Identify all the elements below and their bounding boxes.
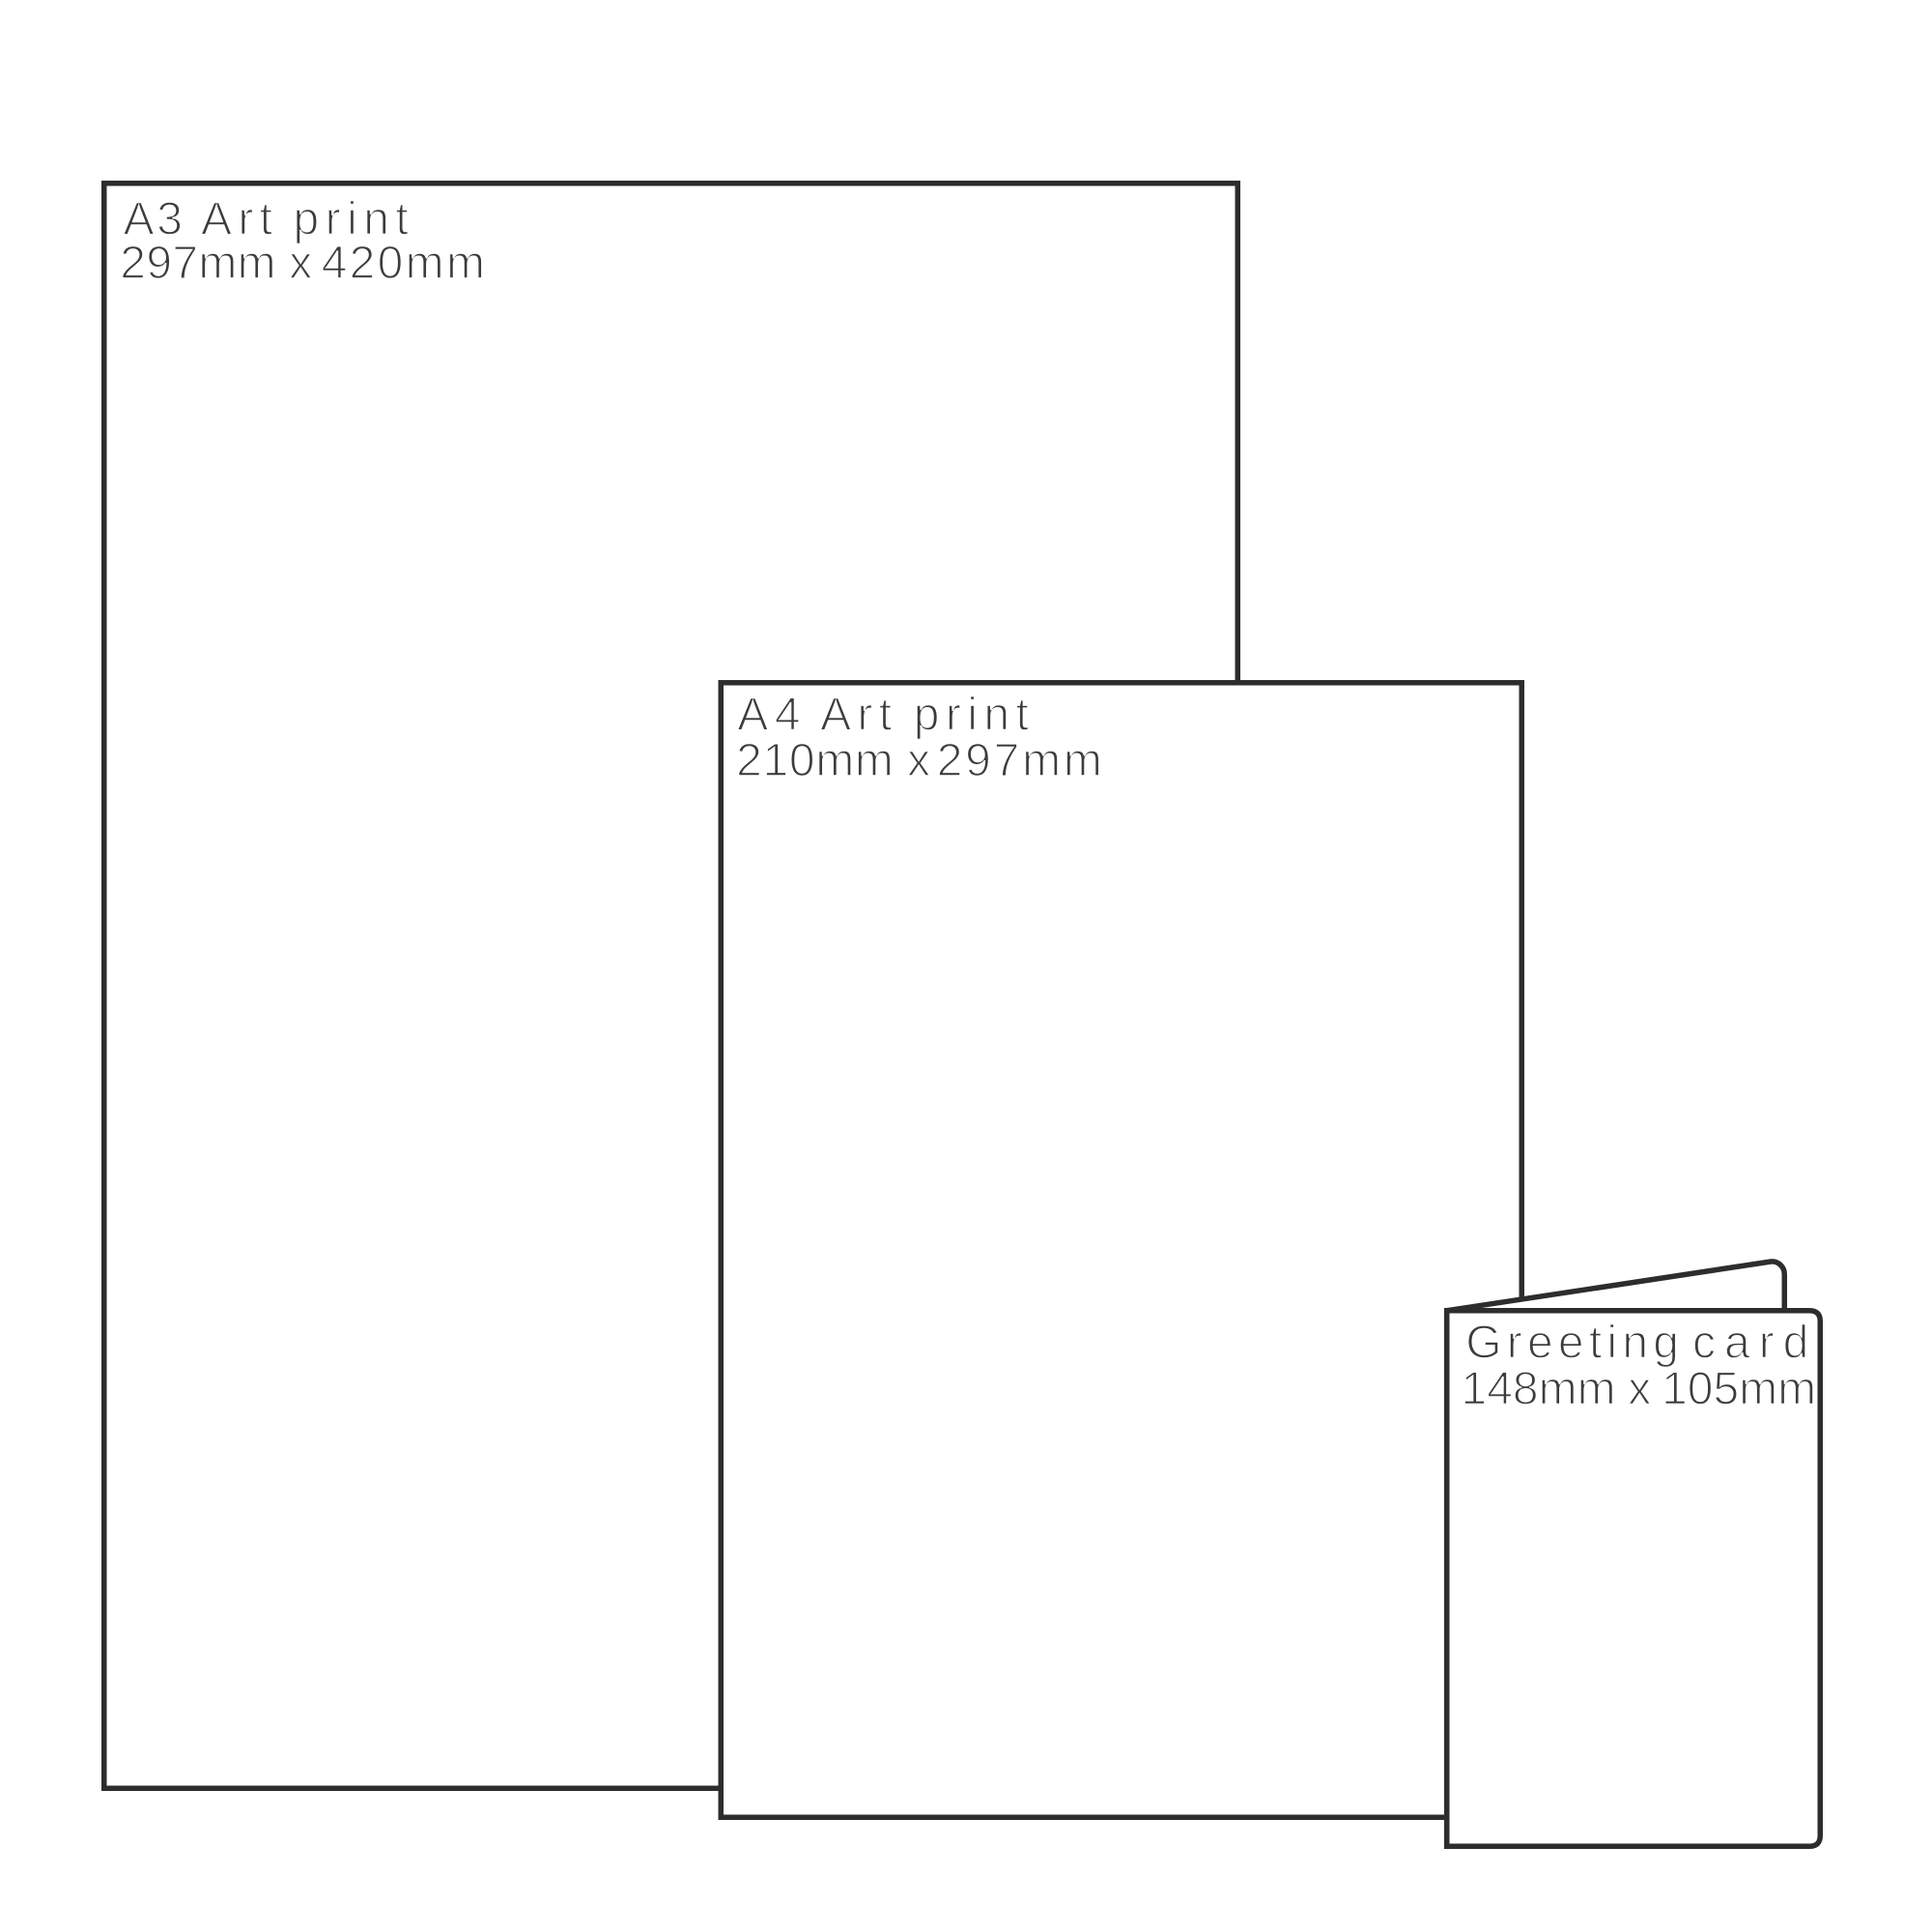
svg-text:148mm: 148mm <box>1462 1364 1616 1415</box>
svg-text:print: print <box>914 690 1036 741</box>
svg-text:x: x <box>289 238 312 289</box>
svg-text:Art: Art <box>820 690 897 741</box>
svg-text:Greeting: Greeting <box>1465 1318 1684 1369</box>
svg-text:card: card <box>1692 1318 1817 1369</box>
svg-text:297mm: 297mm <box>120 238 276 289</box>
svg-text:105mm: 105mm <box>1662 1364 1816 1415</box>
svg-text:x: x <box>907 735 930 786</box>
svg-text:297mm: 297mm <box>937 735 1105 786</box>
svg-text:x: x <box>1628 1364 1651 1415</box>
svg-text:210mm: 210mm <box>736 735 894 786</box>
svg-text:420mm: 420mm <box>322 238 488 289</box>
svg-text:A4: A4 <box>737 690 807 741</box>
